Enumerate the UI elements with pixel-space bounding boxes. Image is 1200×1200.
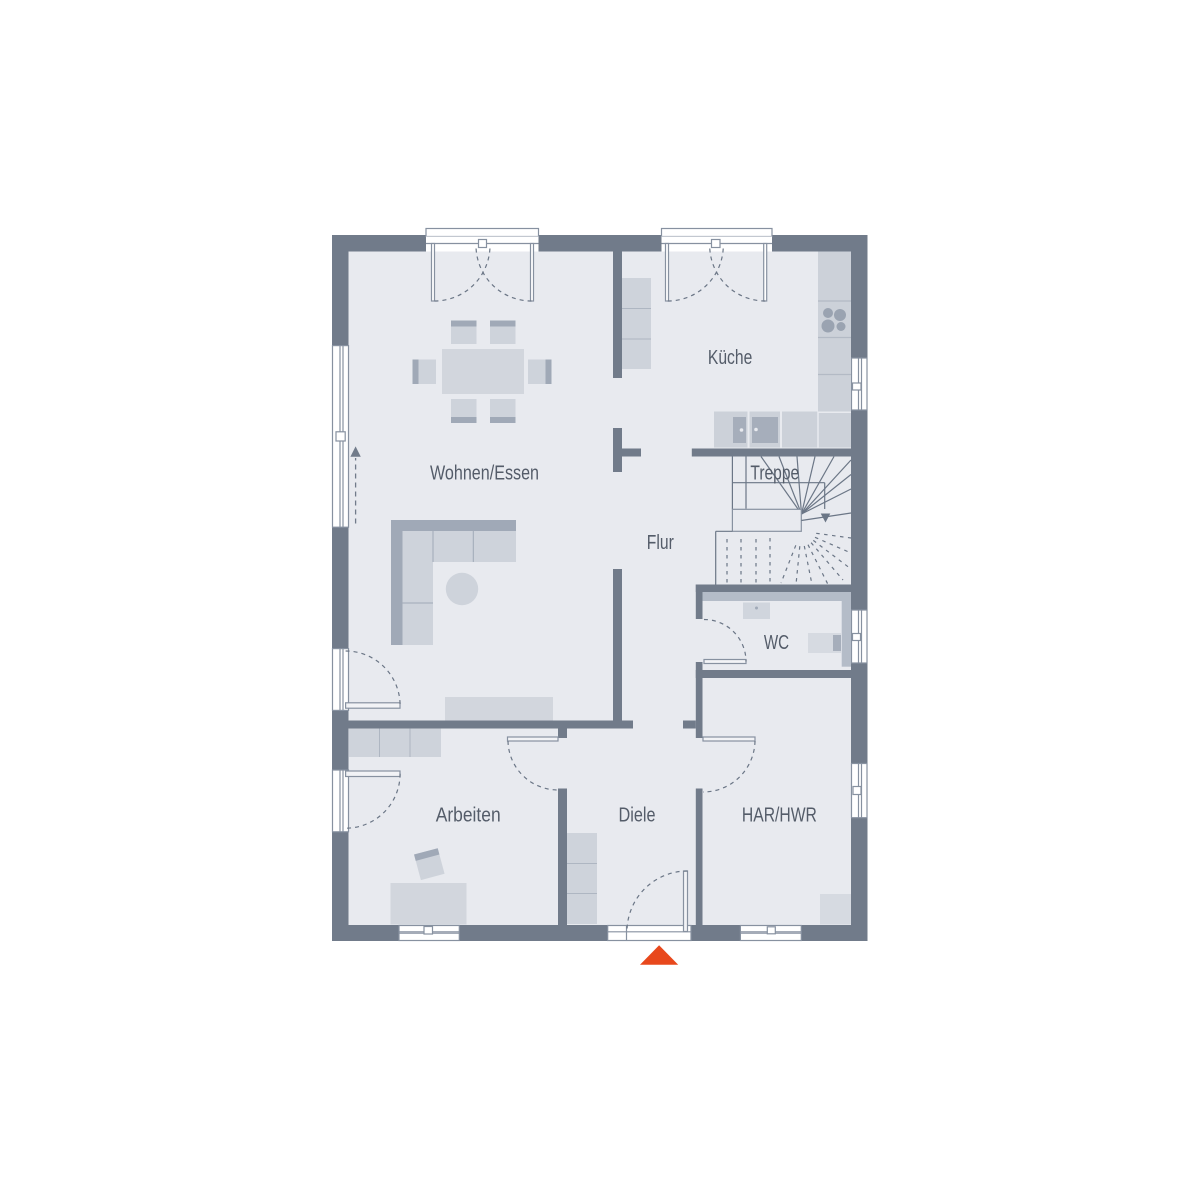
svg-text:Flur: Flur	[647, 532, 674, 554]
svg-text:WC: WC	[764, 632, 789, 654]
svg-text:Wohnen/Essen: Wohnen/Essen	[430, 463, 539, 485]
svg-text:Diele: Diele	[619, 804, 656, 826]
svg-text:Arbeiten: Arbeiten	[436, 804, 501, 826]
svg-text:HAR/HWR: HAR/HWR	[742, 804, 817, 826]
svg-text:Küche: Küche	[708, 347, 752, 369]
svg-text:Treppe: Treppe	[750, 463, 799, 485]
